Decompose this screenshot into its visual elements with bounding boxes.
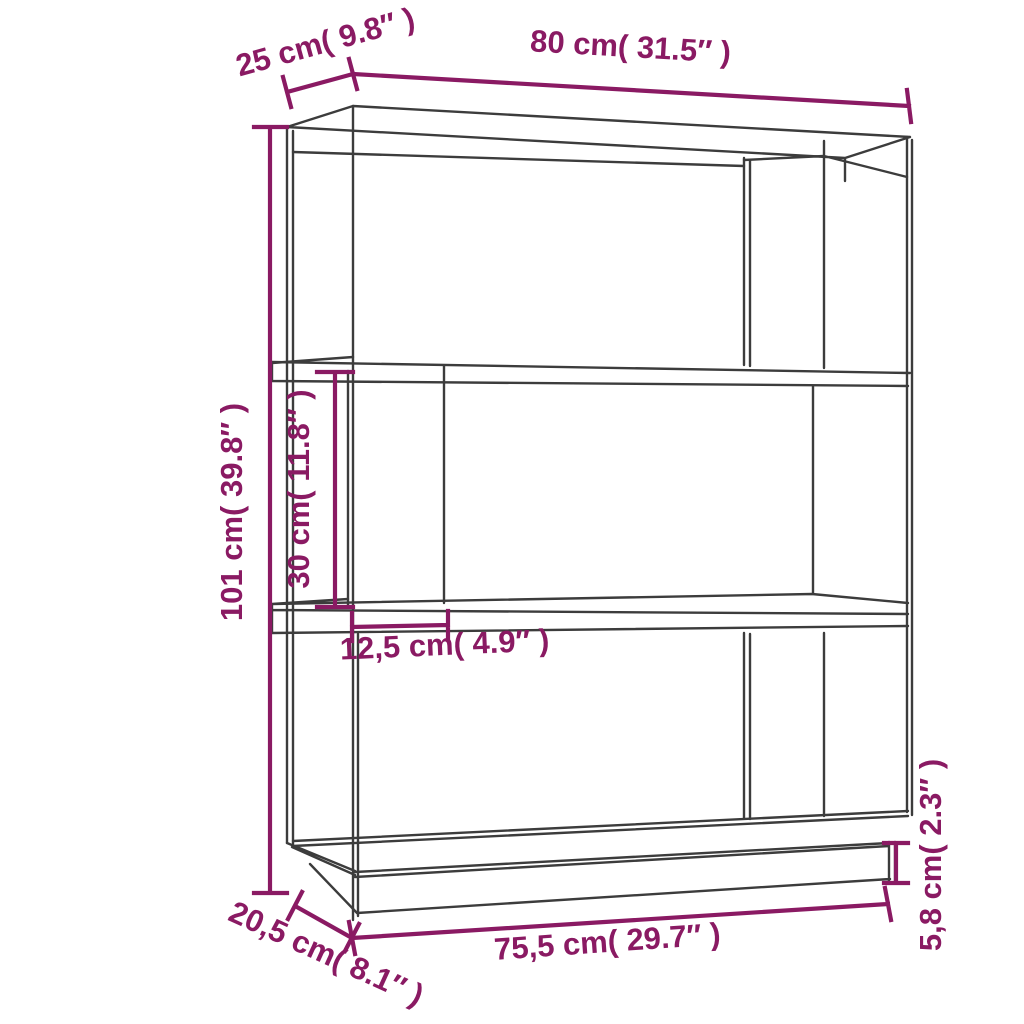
- vertical-panels: [287, 106, 912, 920]
- label-width-top: 80 cm( 31.5″ ): [529, 23, 732, 70]
- label-depth-top: 25 cm( 9.8″ ): [232, 0, 418, 83]
- shelf-upper: [272, 357, 910, 386]
- dimension-diagram: 25 cm( 9.8″ ) 80 cm( 31.5″ ) 101 cm( 39.…: [0, 0, 1024, 1024]
- label-divider-inset: 12,5 cm( 4.9″ ): [339, 622, 550, 666]
- label-shelf-opening-height: 30 cm( 11.8″ ): [281, 389, 316, 588]
- label-width-bottom: 75,5 cm( 29.7″ ): [493, 916, 722, 967]
- dim-plinth-height-line: [884, 843, 908, 883]
- furniture-outline: [272, 106, 912, 920]
- top-panel: [287, 106, 910, 181]
- label-plinth-height: 5,8 cm( 2.3″ ): [913, 759, 948, 951]
- plinth-base: [287, 811, 908, 913]
- bookshelf-line-drawing: 25 cm( 9.8″ ) 80 cm( 31.5″ ) 101 cm( 39.…: [0, 0, 1024, 1024]
- dim-width-top-line: [353, 74, 911, 122]
- label-height-total: 101 cm( 39.8″ ): [214, 403, 249, 621]
- label-depth-bottom: 20,5 cm( 8.1″ ): [224, 894, 429, 1013]
